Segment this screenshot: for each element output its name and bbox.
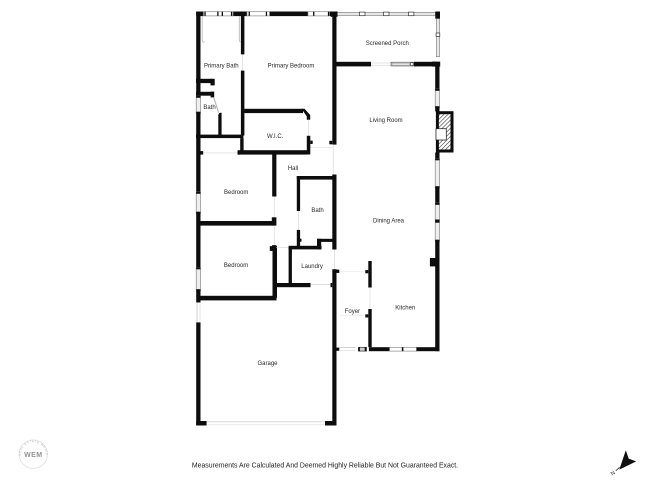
svg-text:Screened Porch: Screened Porch	[366, 41, 409, 47]
svg-text:Bedroom: Bedroom	[224, 190, 248, 196]
svg-text:Measurements Are Calculated An: Measurements Are Calculated And Deemed H…	[192, 462, 458, 469]
svg-text:Laundry: Laundry	[301, 264, 323, 270]
svg-text:Living Room: Living Room	[369, 118, 402, 124]
svg-text:Hall: Hall	[288, 166, 298, 172]
svg-text:Primary Bath: Primary Bath	[204, 64, 239, 70]
svg-text:Garage: Garage	[257, 361, 278, 367]
svg-text:Kitchen: Kitchen	[395, 305, 415, 311]
svg-text:Bath: Bath	[311, 208, 323, 214]
svg-text:Dining Area: Dining Area	[373, 219, 405, 225]
svg-text:Bath: Bath	[203, 105, 215, 111]
svg-text:Foyer: Foyer	[345, 309, 360, 315]
svg-text:WEM: WEM	[24, 452, 42, 459]
svg-text:W.I.C.: W.I.C.	[267, 134, 284, 140]
svg-text:Primary Bedroom: Primary Bedroom	[268, 63, 315, 69]
svg-text:Bedroom: Bedroom	[224, 263, 248, 269]
